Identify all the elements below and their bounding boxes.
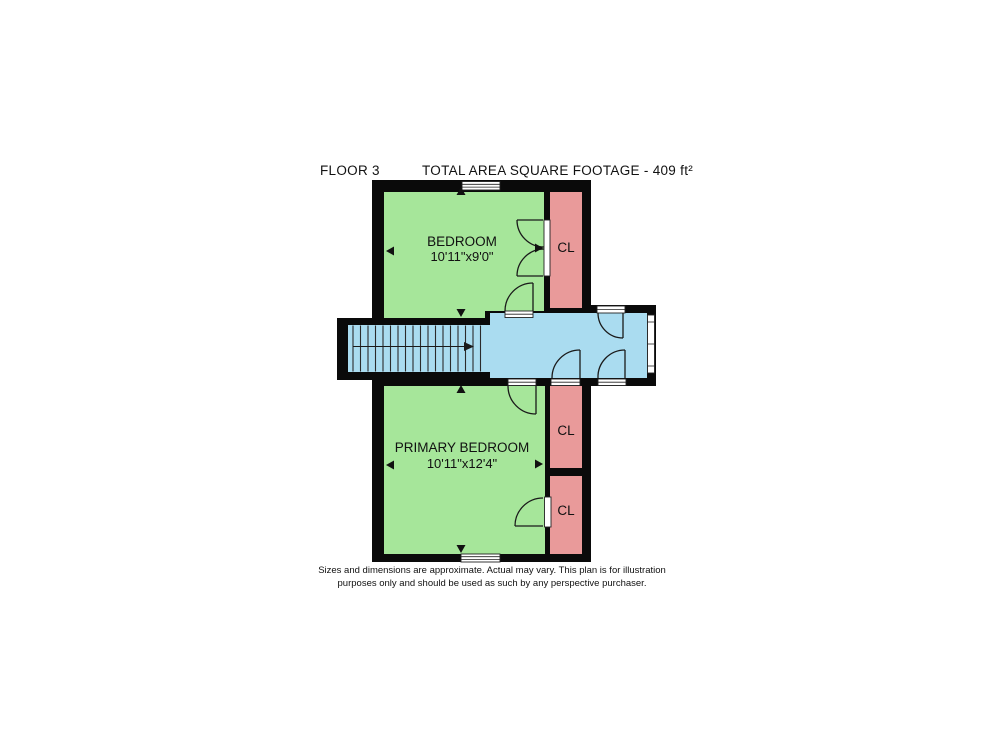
window-icon-top — [462, 182, 500, 191]
window-icon-bottom — [461, 554, 500, 562]
disclaimer-line-2: purposes only and should be used as such… — [338, 578, 647, 589]
doorway-hall-top — [597, 306, 625, 313]
doorway-primary-closet — [545, 497, 552, 527]
floor-plan-page: FLOOR 3 TOTAL AREA SQUARE FOOTAGE - 409 … — [0, 0, 1000, 737]
floor-plan-drawing: FLOOR 3 TOTAL AREA SQUARE FOOTAGE - 409 … — [0, 0, 1000, 737]
doorway-primary-hall — [508, 379, 536, 386]
window-icon-hall-right — [648, 315, 655, 373]
closet-mid-label: CL — [557, 423, 575, 438]
bedroom-label: BEDROOM — [427, 234, 497, 249]
closet-low-label: CL — [557, 503, 575, 518]
primary-bedroom-dimensions: 10'11"x12'4" — [427, 456, 498, 471]
disclaimer-line-1: Sizes and dimensions are approximate. Ac… — [318, 565, 666, 576]
total-area-label: TOTAL AREA SQUARE FOOTAGE - 409 ft² — [422, 163, 693, 178]
doorway-bedroom-closet — [544, 220, 550, 276]
closet-top-label: CL — [557, 240, 575, 255]
doorway-bedroom-hall — [505, 311, 533, 318]
primary-bedroom-label: PRIMARY BEDROOM — [395, 440, 530, 455]
floor-label: FLOOR 3 — [320, 163, 380, 178]
doorway-hall-bottom-right — [598, 379, 626, 386]
doorway-hall-bottom-left — [551, 379, 580, 386]
bedroom-dimensions: 10'11"x9'0" — [430, 249, 493, 264]
